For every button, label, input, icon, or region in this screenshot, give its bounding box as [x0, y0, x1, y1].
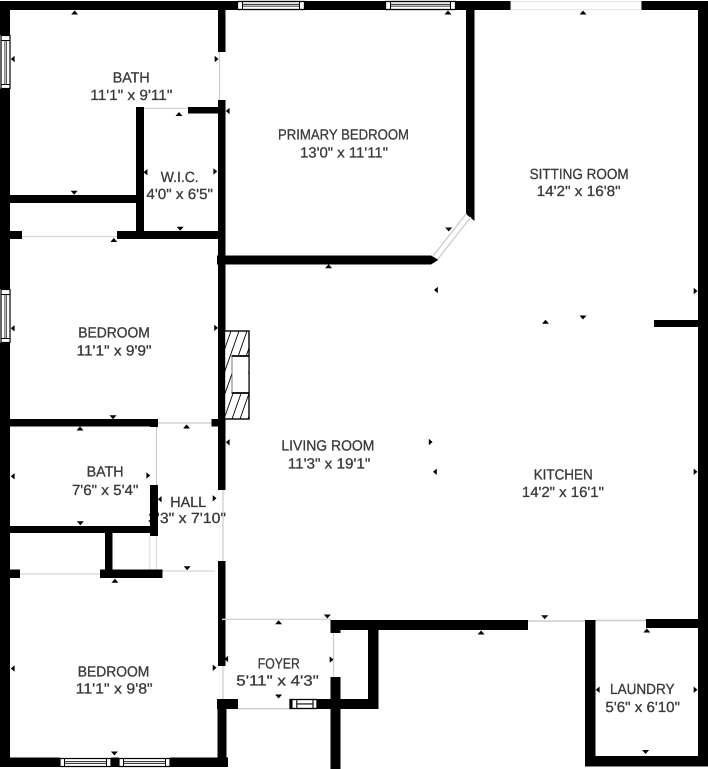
svg-text:LAUNDRY: LAUNDRY — [610, 682, 675, 698]
svg-text:FOYER: FOYER — [258, 657, 300, 673]
svg-text:11'1" x 9'8": 11'1" x 9'8" — [76, 682, 153, 698]
svg-text:14'2" x 16'8": 14'2" x 16'8" — [537, 184, 621, 200]
svg-text:LIVING ROOM: LIVING ROOM — [281, 439, 374, 455]
svg-text:BEDROOM: BEDROOM — [78, 665, 150, 681]
svg-text:BEDROOM: BEDROOM — [78, 325, 150, 341]
svg-text:BATH: BATH — [113, 70, 150, 86]
svg-text:14'2" x 16'1": 14'2" x 16'1" — [522, 485, 604, 501]
svg-text:11'3" x 19'1": 11'3" x 19'1" — [288, 456, 371, 472]
svg-text:7'6" x 5'4": 7'6" x 5'4" — [72, 483, 139, 499]
svg-text:W.I.C.: W.I.C. — [161, 170, 199, 186]
svg-text:BATH: BATH — [87, 464, 124, 480]
svg-text:PRIMARY BEDROOM: PRIMARY BEDROOM — [278, 127, 409, 143]
svg-text:11'1" x 9'9": 11'1" x 9'9" — [77, 343, 152, 359]
svg-text:5'6" x 6'10": 5'6" x 6'10" — [605, 700, 680, 716]
svg-text:13'0" x 11'11": 13'0" x 11'11" — [300, 145, 388, 161]
svg-text:3'3" x 7'10": 3'3" x 7'10" — [148, 511, 226, 527]
svg-text:5'11" x 4'3": 5'11" x 4'3" — [236, 674, 319, 690]
svg-text:SITTING ROOM: SITTING ROOM — [530, 167, 629, 183]
svg-text:KITCHEN: KITCHEN — [534, 467, 593, 483]
svg-text:4'0" x 6'5": 4'0" x 6'5" — [146, 187, 213, 203]
svg-text:11'1" x 9'11": 11'1" x 9'11" — [90, 88, 172, 104]
svg-text:HALL: HALL — [170, 495, 206, 511]
